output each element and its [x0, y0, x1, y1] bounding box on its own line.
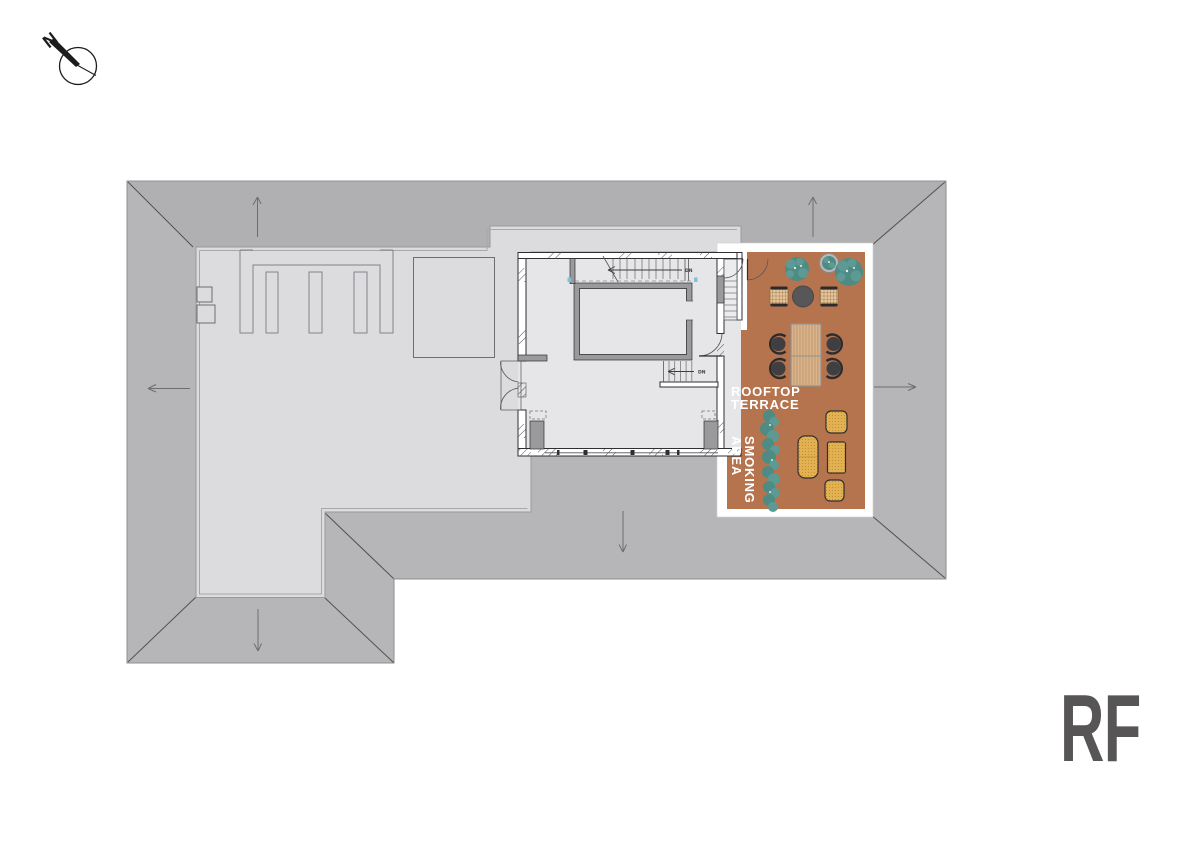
lounge-chair: [825, 480, 844, 501]
shrub-planter: [835, 258, 863, 286]
outdoor-sofa: [798, 436, 818, 478]
stair-direction-label: DN: [685, 268, 693, 274]
rattan-armchair: [770, 287, 788, 307]
floor-plan-canvas: DN DN: [0, 0, 1191, 842]
stair-direction-label: DN: [698, 370, 706, 376]
roof-vent-boxes: [197, 287, 215, 323]
stair-bay-east-wall: [737, 253, 742, 321]
roof-plan-drawing: DN DN: [0, 0, 1191, 842]
stair-marker-tick: [568, 278, 572, 283]
wall-stub: [518, 355, 547, 361]
floor-code-label: RF: [1060, 681, 1141, 777]
lounge-chair: [826, 411, 847, 433]
roof-hatch-skylight: [414, 258, 495, 358]
shrub-planter: [785, 257, 809, 281]
stair-marker-tick: [694, 278, 698, 283]
core-room-opening: [686, 301, 693, 320]
wood-dining-table: [791, 324, 821, 386]
stair-penthouse: DN DN: [500, 252, 768, 456]
terrace-label-line2: TERRACE: [731, 398, 801, 411]
smoking-label-line1: SMOKING: [743, 436, 756, 500]
terrace-label: ROOFTOP TERRACE: [731, 385, 801, 411]
rattan-armchair: [820, 287, 838, 307]
stair-enclosure-wall: [660, 382, 718, 387]
round-bistro-table: [793, 286, 814, 307]
smoking-area-label: SMOKING AREA: [730, 436, 756, 500]
outdoor-coffee-table: [828, 442, 846, 473]
pier-sw: [530, 421, 544, 449]
core-room: [574, 283, 693, 360]
pier-se: [704, 421, 718, 449]
